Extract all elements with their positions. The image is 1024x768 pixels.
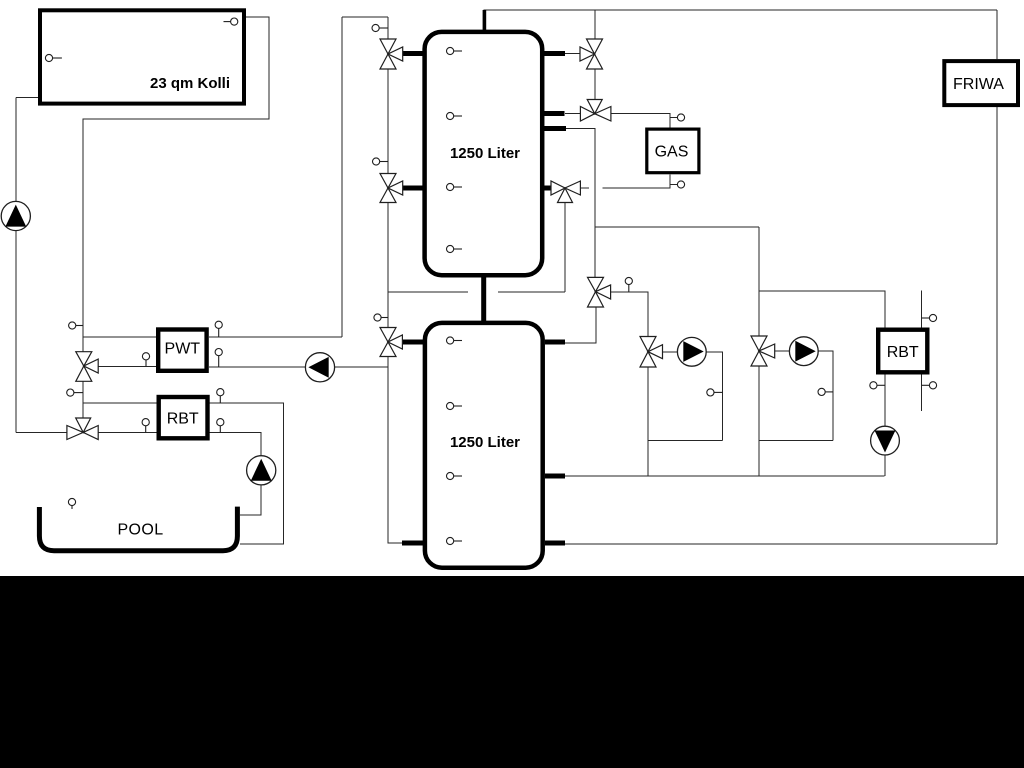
svg-text:RBT: RBT [167,411,199,428]
svg-text:1250 Liter: 1250 Liter [450,434,520,451]
svg-text:POOL: POOL [117,522,163,539]
svg-text:1250 Liter: 1250 Liter [450,145,520,162]
svg-text:PWT: PWT [165,340,201,357]
svg-text:GAS: GAS [655,144,689,161]
svg-text:23 qm Kolli: 23 qm Kolli [150,75,230,92]
svg-text:RBT: RBT [887,344,919,361]
svg-text:FRIWA: FRIWA [953,76,1004,93]
